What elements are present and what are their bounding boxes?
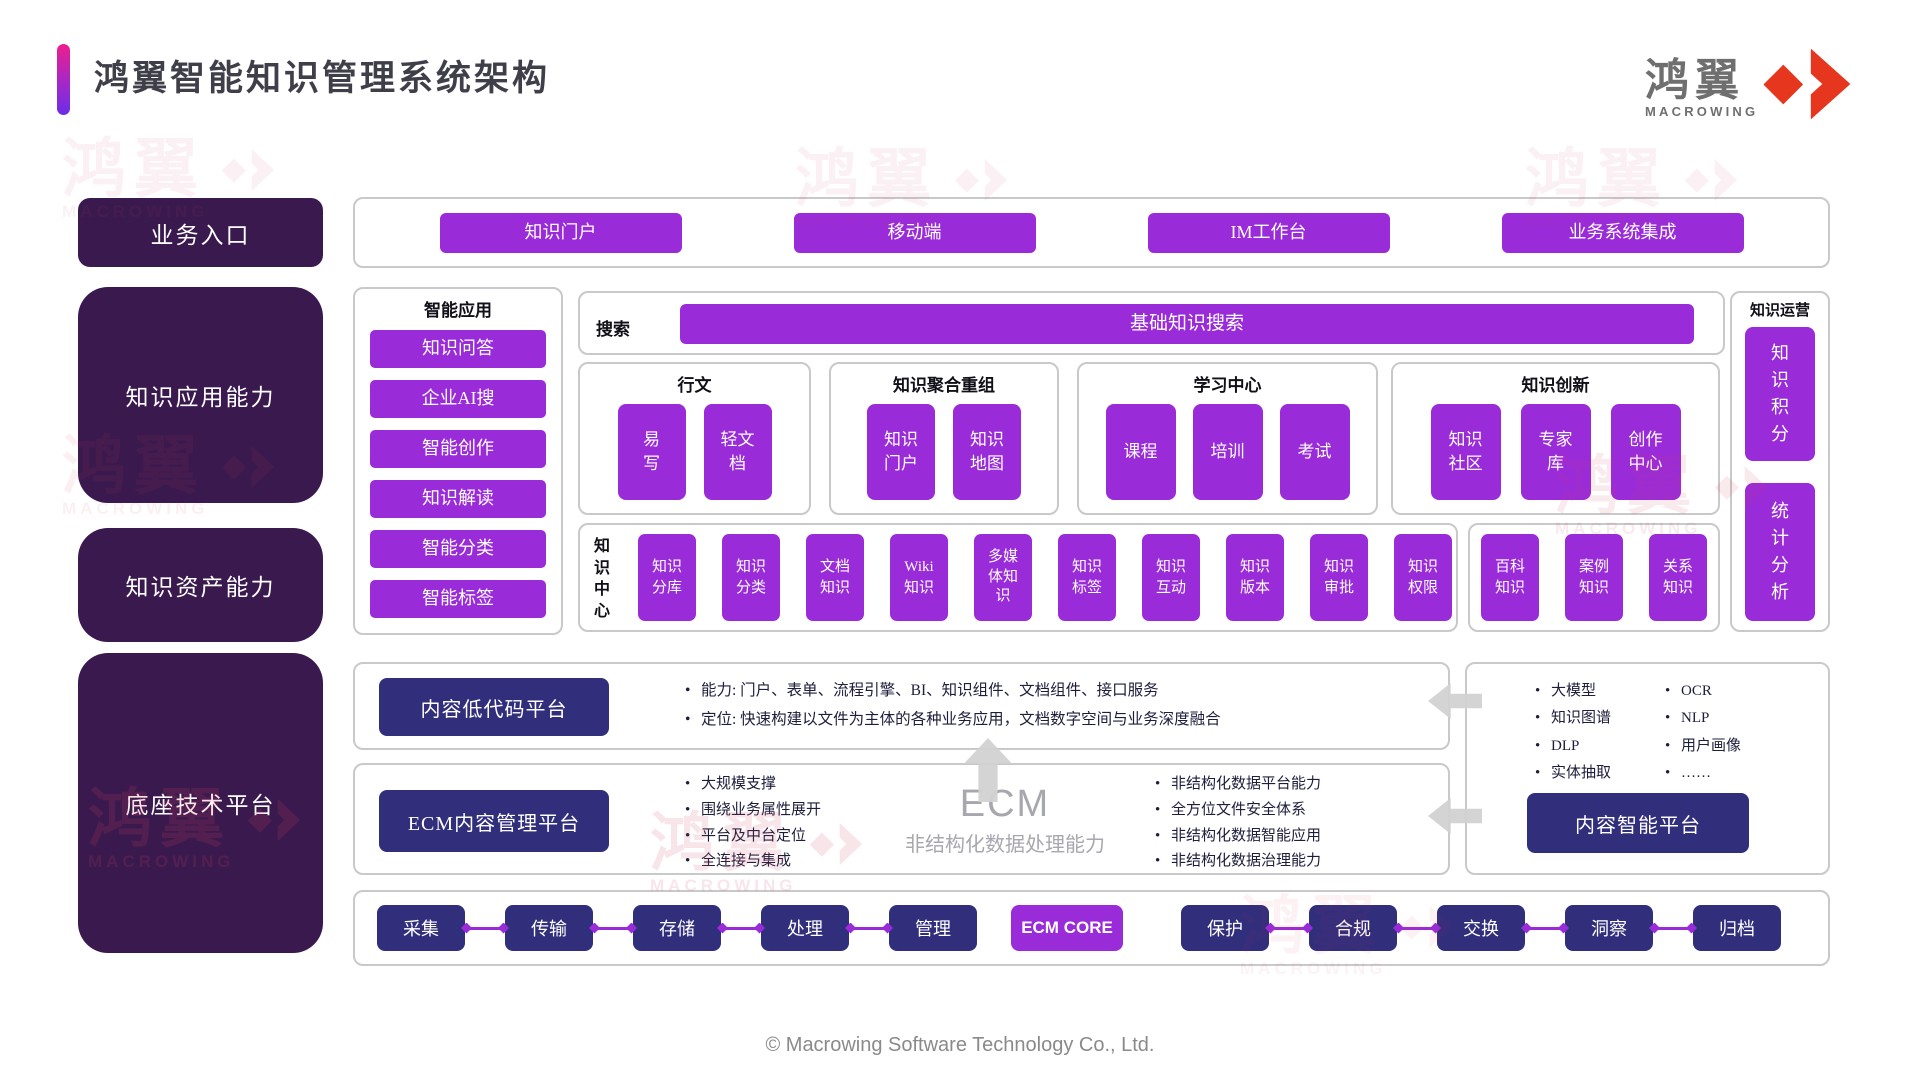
logo-text: 鸿翼 xyxy=(1645,44,1745,108)
ecm-bullet: 围绕业务属性展开 xyxy=(685,798,821,824)
node-store: 存储 xyxy=(633,905,721,951)
logo-chevron-icon xyxy=(1763,46,1867,122)
node-knowledge-interpretation: 知识解读 xyxy=(370,480,546,518)
node-knowledge-portal: 知识门户 xyxy=(440,213,682,253)
node-encyclopedia-knowledge: 百科 知识 xyxy=(1481,534,1539,621)
pipeline-connector xyxy=(849,922,889,934)
node-ecm-core: ECM CORE xyxy=(1011,905,1123,951)
section-aggregation: 知识聚合重组 知识 门户 知识 地图 xyxy=(829,362,1059,515)
pipeline-connector xyxy=(721,922,761,934)
content-intelligence-panel: 大模型 知识图谱 DLP 实体抽取 OCR NLP 用户画像 …… 内容智能平台 xyxy=(1465,662,1830,875)
rail-base-platform: 底座技术平台 xyxy=(78,653,323,953)
title-accent-bar xyxy=(57,44,70,115)
node-knowledge-permissions: 知识 权限 xyxy=(1394,534,1452,621)
section-writing: 行文 易 写 轻文 档 xyxy=(578,362,811,515)
node-business-integration: 业务系统集成 xyxy=(1502,213,1744,253)
smart-apps-panel: 智能应用 知识问答 企业AI搜 智能创作 知识解读 智能分类 智能标签 xyxy=(353,287,563,635)
node-smart-creation: 智能创作 xyxy=(370,430,546,468)
node-relation-knowledge: 关系 知识 xyxy=(1649,534,1707,621)
page-title: 鸿翼智能知识管理系统架构 xyxy=(94,50,550,101)
node-multimedia-knowledge: 多媒 体知 识 xyxy=(974,534,1032,621)
intelligence-bullet: 知识图谱 xyxy=(1535,705,1611,732)
node-process: 处理 xyxy=(761,905,849,951)
entry-row-panel: 知识门户 移动端 IM工作台 业务系统集成 xyxy=(353,197,1830,268)
knowledge-center-panel: 知 识 中 心 知识 分库 知识 分类 文档 知识 Wiki 知识 多媒 体知 … xyxy=(578,523,1458,632)
lowcode-bullet: 能力: 门户、表单、流程引擎、BI、知识组件、文档组件、接口服务 xyxy=(685,676,1221,705)
ecm-pipeline-panel: 采集 传输 存储 处理 管理 ECM CORE 保护 合规 交换 洞察 归档 xyxy=(353,890,1830,966)
node-case-knowledge: 案例 知识 xyxy=(1565,534,1623,621)
node-exchange: 交换 xyxy=(1437,905,1525,951)
node-insight: 洞察 xyxy=(1565,905,1653,951)
ecm-watermark-title: ECM xyxy=(875,783,1135,826)
pipeline-connector xyxy=(1397,922,1437,934)
node-easy-write: 易 写 xyxy=(618,404,686,500)
node-knowledge-points: 知 识 积 分 xyxy=(1745,327,1815,461)
node-knowledge-taxonomy: 知识 分类 xyxy=(722,534,780,621)
node-im-workbench: IM工作台 xyxy=(1148,213,1390,253)
ecm-bullet: 全方位文件安全体系 xyxy=(1155,798,1321,824)
intelligence-bullet: 实体抽取 xyxy=(1535,760,1611,787)
node-smart-classification: 智能分类 xyxy=(370,530,546,568)
knowledge-center-label: 知 识 中 心 xyxy=(594,536,610,622)
section-innovation: 知识创新 知识 社区 专家 库 创作 中心 xyxy=(1391,362,1720,515)
ecm-panel: ECM内容管理平台 大规模支撑 围绕业务属性展开 平台及中台定位 全连接与集成 … xyxy=(353,763,1450,875)
ecm-bullet: 平台及中台定位 xyxy=(685,824,821,850)
node-transfer: 传输 xyxy=(505,905,593,951)
lowcode-bullet: 定位: 快速构建以文件为主体的各种业务应用，文档数字空间与业务深度融合 xyxy=(685,705,1221,734)
rail-business-entry: 业务入口 xyxy=(78,198,323,267)
node-expert-library: 专家 库 xyxy=(1521,404,1591,500)
node-mobile: 移动端 xyxy=(794,213,1036,253)
node-knowledge-interaction: 知识 互动 xyxy=(1142,534,1200,621)
node-knowledge-repos: 知识 分库 xyxy=(638,534,696,621)
node-training: 培训 xyxy=(1193,404,1263,500)
node-content-intelligence-platform: 内容智能平台 xyxy=(1527,793,1749,853)
intelligence-bullet: NLP xyxy=(1665,705,1741,732)
node-protect: 保护 xyxy=(1181,905,1269,951)
ecm-bullet: 非结构化数据治理能力 xyxy=(1155,849,1321,875)
ecm-bullet: 大规模支撑 xyxy=(685,772,821,798)
node-statistics-analysis: 统 计 分 析 xyxy=(1745,483,1815,621)
pipeline-connector xyxy=(593,922,633,934)
node-course: 课程 xyxy=(1106,404,1176,500)
node-enterprise-ai-search: 企业AI搜 xyxy=(370,380,546,418)
section-learning-center: 学习中心 课程 培训 考试 xyxy=(1077,362,1378,515)
node-knowledge-portal-small: 知识 门户 xyxy=(867,404,935,500)
node-exam: 考试 xyxy=(1280,404,1350,500)
intelligence-bullet: OCR xyxy=(1665,678,1741,705)
node-knowledge-versions: 知识 版本 xyxy=(1226,534,1284,621)
node-knowledge-community: 知识 社区 xyxy=(1431,404,1501,500)
intelligence-bullet: 用户画像 xyxy=(1665,733,1741,760)
node-smart-tagging: 智能标签 xyxy=(370,580,546,618)
intelligence-bullet: …… xyxy=(1665,760,1741,787)
node-knowledge-qa: 知识问答 xyxy=(370,330,546,368)
pipeline-connector xyxy=(1653,922,1693,934)
rail-knowledge-application: 知识应用能力 xyxy=(78,287,323,503)
node-archive: 归档 xyxy=(1693,905,1781,951)
company-logo: 鸿翼 MACROWING xyxy=(1645,42,1875,132)
node-collect: 采集 xyxy=(377,905,465,951)
knowledge-types-panel: 百科 知识 案例 知识 关系 知识 xyxy=(1468,523,1720,632)
pipeline-connector xyxy=(465,922,505,934)
operations-title: 知识运营 xyxy=(1732,299,1828,320)
ecm-bullet: 非结构化数据平台能力 xyxy=(1155,772,1321,798)
smart-apps-title: 智能应用 xyxy=(355,296,561,321)
intelligence-bullet: 大模型 xyxy=(1535,678,1611,705)
node-knowledge-map: 知识 地图 xyxy=(953,404,1021,500)
copyright-footer: © Macrowing Software Technology Co., Ltd… xyxy=(0,1034,1920,1057)
chevron-watermark-icon xyxy=(220,145,286,195)
node-compliance: 合规 xyxy=(1309,905,1397,951)
intelligence-bullet: DLP xyxy=(1535,733,1611,760)
ecm-watermark-subtitle: 非结构化数据处理能力 xyxy=(875,828,1135,857)
node-document-knowledge: 文档 知识 xyxy=(806,534,864,621)
architecture-slide: 鸿翼 MACROWING 鸿翼 MACROWING 鸿翼 MACROWING 鸿… xyxy=(0,0,1920,1080)
node-knowledge-tags: 知识 标签 xyxy=(1058,534,1116,621)
node-manage: 管理 xyxy=(889,905,977,951)
search-label: 搜索 xyxy=(596,315,630,340)
node-ecm-platform: ECM内容管理平台 xyxy=(379,790,609,852)
node-lowcode-platform: 内容低代码平台 xyxy=(379,678,609,736)
node-basic-knowledge-search: 基础知识搜索 xyxy=(680,304,1694,344)
logo-subtext: MACROWING xyxy=(1645,104,1758,119)
knowledge-operations-panel: 知识运营 知 识 积 分 统 计 分 析 xyxy=(1730,291,1830,632)
node-creation-center: 创作 中心 xyxy=(1611,404,1681,500)
pipeline-connector xyxy=(1269,922,1309,934)
node-light-document: 轻文 档 xyxy=(704,404,772,500)
rail-knowledge-asset: 知识资产能力 xyxy=(78,528,323,642)
node-wiki-knowledge: Wiki 知识 xyxy=(890,534,948,621)
search-panel: 搜索 基础知识搜索 xyxy=(578,291,1725,355)
node-knowledge-approval: 知识 审批 xyxy=(1310,534,1368,621)
pipeline-connector xyxy=(1525,922,1565,934)
ecm-bullet: 全连接与集成 xyxy=(685,849,821,875)
lowcode-panel: 内容低代码平台 能力: 门户、表单、流程引擎、BI、知识组件、文档组件、接口服务… xyxy=(353,662,1450,750)
ecm-bullet: 非结构化数据智能应用 xyxy=(1155,824,1321,850)
